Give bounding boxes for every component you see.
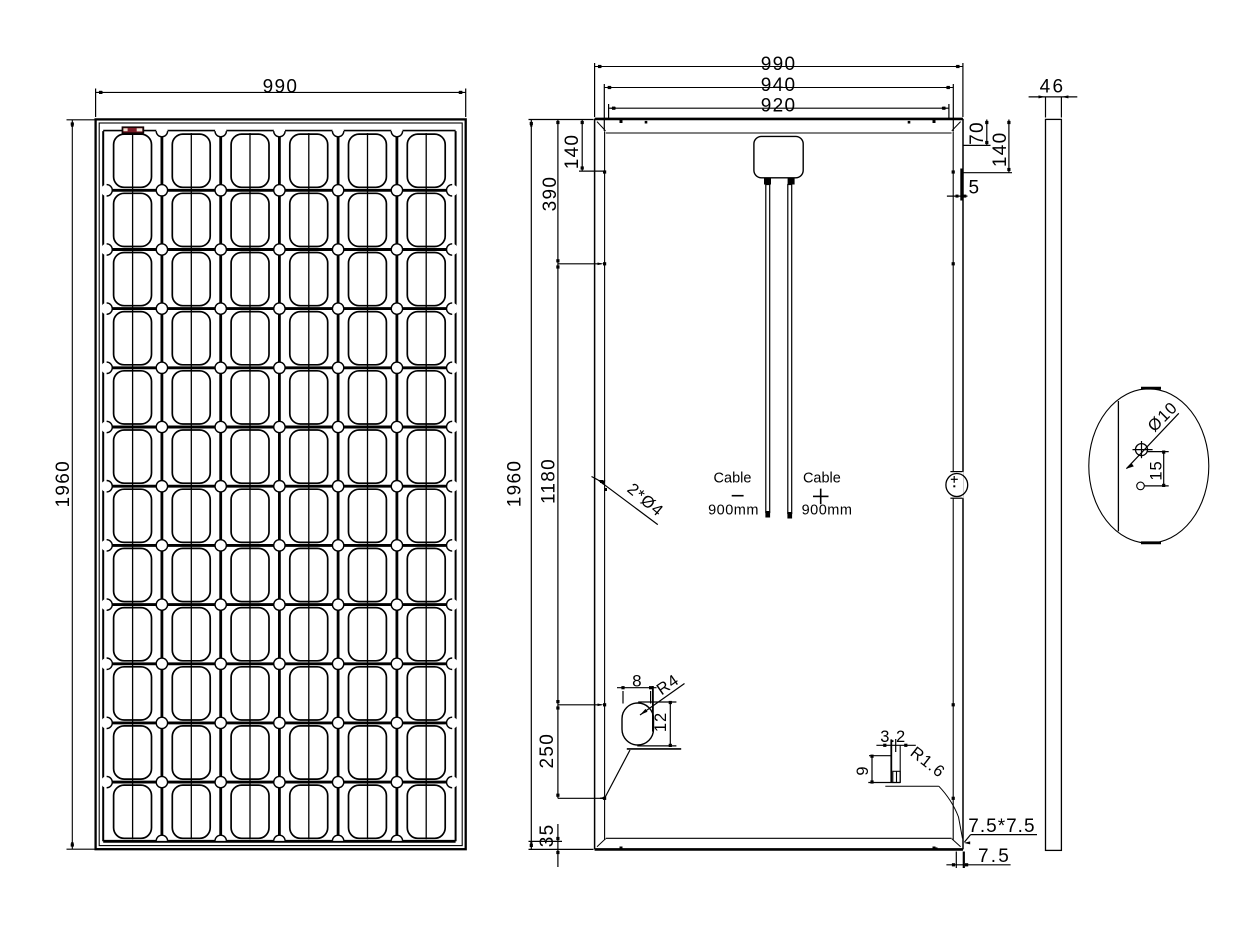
- svg-text:990: 990: [761, 54, 797, 75]
- svg-text:900mm: 900mm: [802, 503, 853, 519]
- svg-text:1180: 1180: [539, 458, 560, 504]
- svg-text:140: 140: [990, 131, 1011, 167]
- svg-text:900mm: 900mm: [708, 503, 759, 519]
- svg-text:35: 35: [537, 824, 558, 848]
- svg-text:Cable: Cable: [714, 471, 752, 487]
- svg-text:12: 12: [652, 712, 670, 732]
- svg-text:7.5: 7.5: [978, 846, 1011, 867]
- svg-text:990: 990: [263, 77, 299, 98]
- svg-text:70: 70: [967, 121, 988, 145]
- svg-text:1960: 1960: [53, 460, 74, 507]
- svg-text:15: 15: [1148, 460, 1166, 480]
- svg-text:3.2: 3.2: [880, 728, 906, 746]
- svg-text:250: 250: [537, 733, 558, 769]
- svg-text:9: 9: [854, 766, 872, 775]
- svg-text:920: 920: [761, 96, 797, 117]
- svg-text:390: 390: [540, 176, 561, 212]
- svg-text:8: 8: [632, 672, 641, 691]
- svg-text:Cable: Cable: [803, 471, 841, 487]
- svg-text:940: 940: [761, 75, 797, 96]
- svg-text:140: 140: [562, 134, 583, 170]
- svg-text:1960: 1960: [505, 460, 526, 507]
- svg-text:7.5*7.5: 7.5*7.5: [968, 816, 1035, 837]
- svg-text:5: 5: [969, 178, 980, 199]
- svg-text:46: 46: [1040, 77, 1066, 98]
